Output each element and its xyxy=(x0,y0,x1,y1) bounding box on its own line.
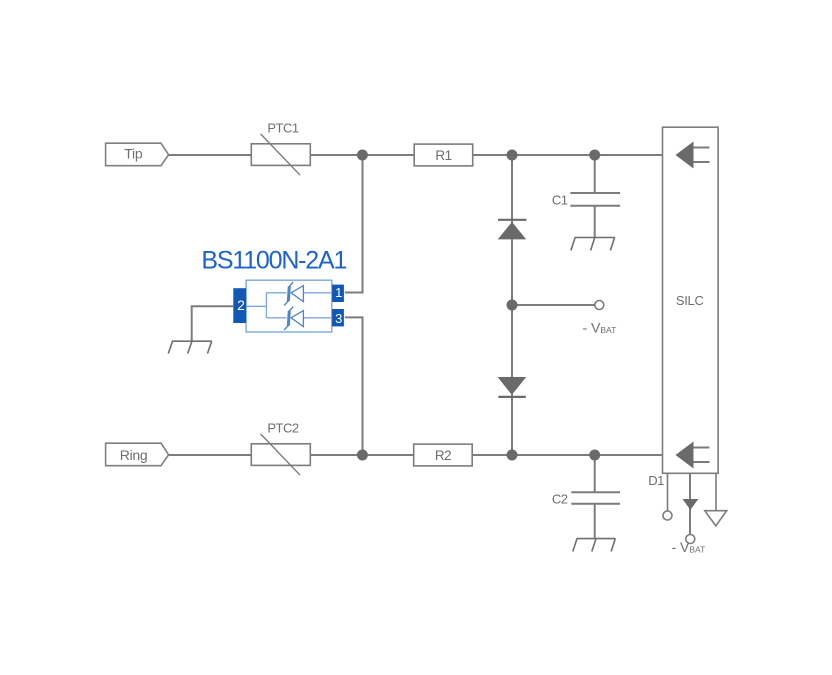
svg-text:PTC2: PTC2 xyxy=(267,421,299,436)
svg-text:PTC1: PTC1 xyxy=(267,121,299,136)
svg-text:1: 1 xyxy=(335,285,342,300)
svg-text:C2: C2 xyxy=(552,492,568,507)
svg-text:R1: R1 xyxy=(435,148,451,163)
svg-text:R2: R2 xyxy=(435,448,451,463)
svg-text:Tip: Tip xyxy=(124,146,143,162)
svg-text:2: 2 xyxy=(237,297,245,313)
svg-text:Ring: Ring xyxy=(120,447,148,463)
svg-text:BS1100N-2A1: BS1100N-2A1 xyxy=(201,247,346,275)
svg-text:3: 3 xyxy=(335,311,342,326)
svg-text:SILC: SILC xyxy=(676,293,704,308)
svg-text:D1: D1 xyxy=(648,473,664,488)
svg-text:C1: C1 xyxy=(552,193,568,208)
